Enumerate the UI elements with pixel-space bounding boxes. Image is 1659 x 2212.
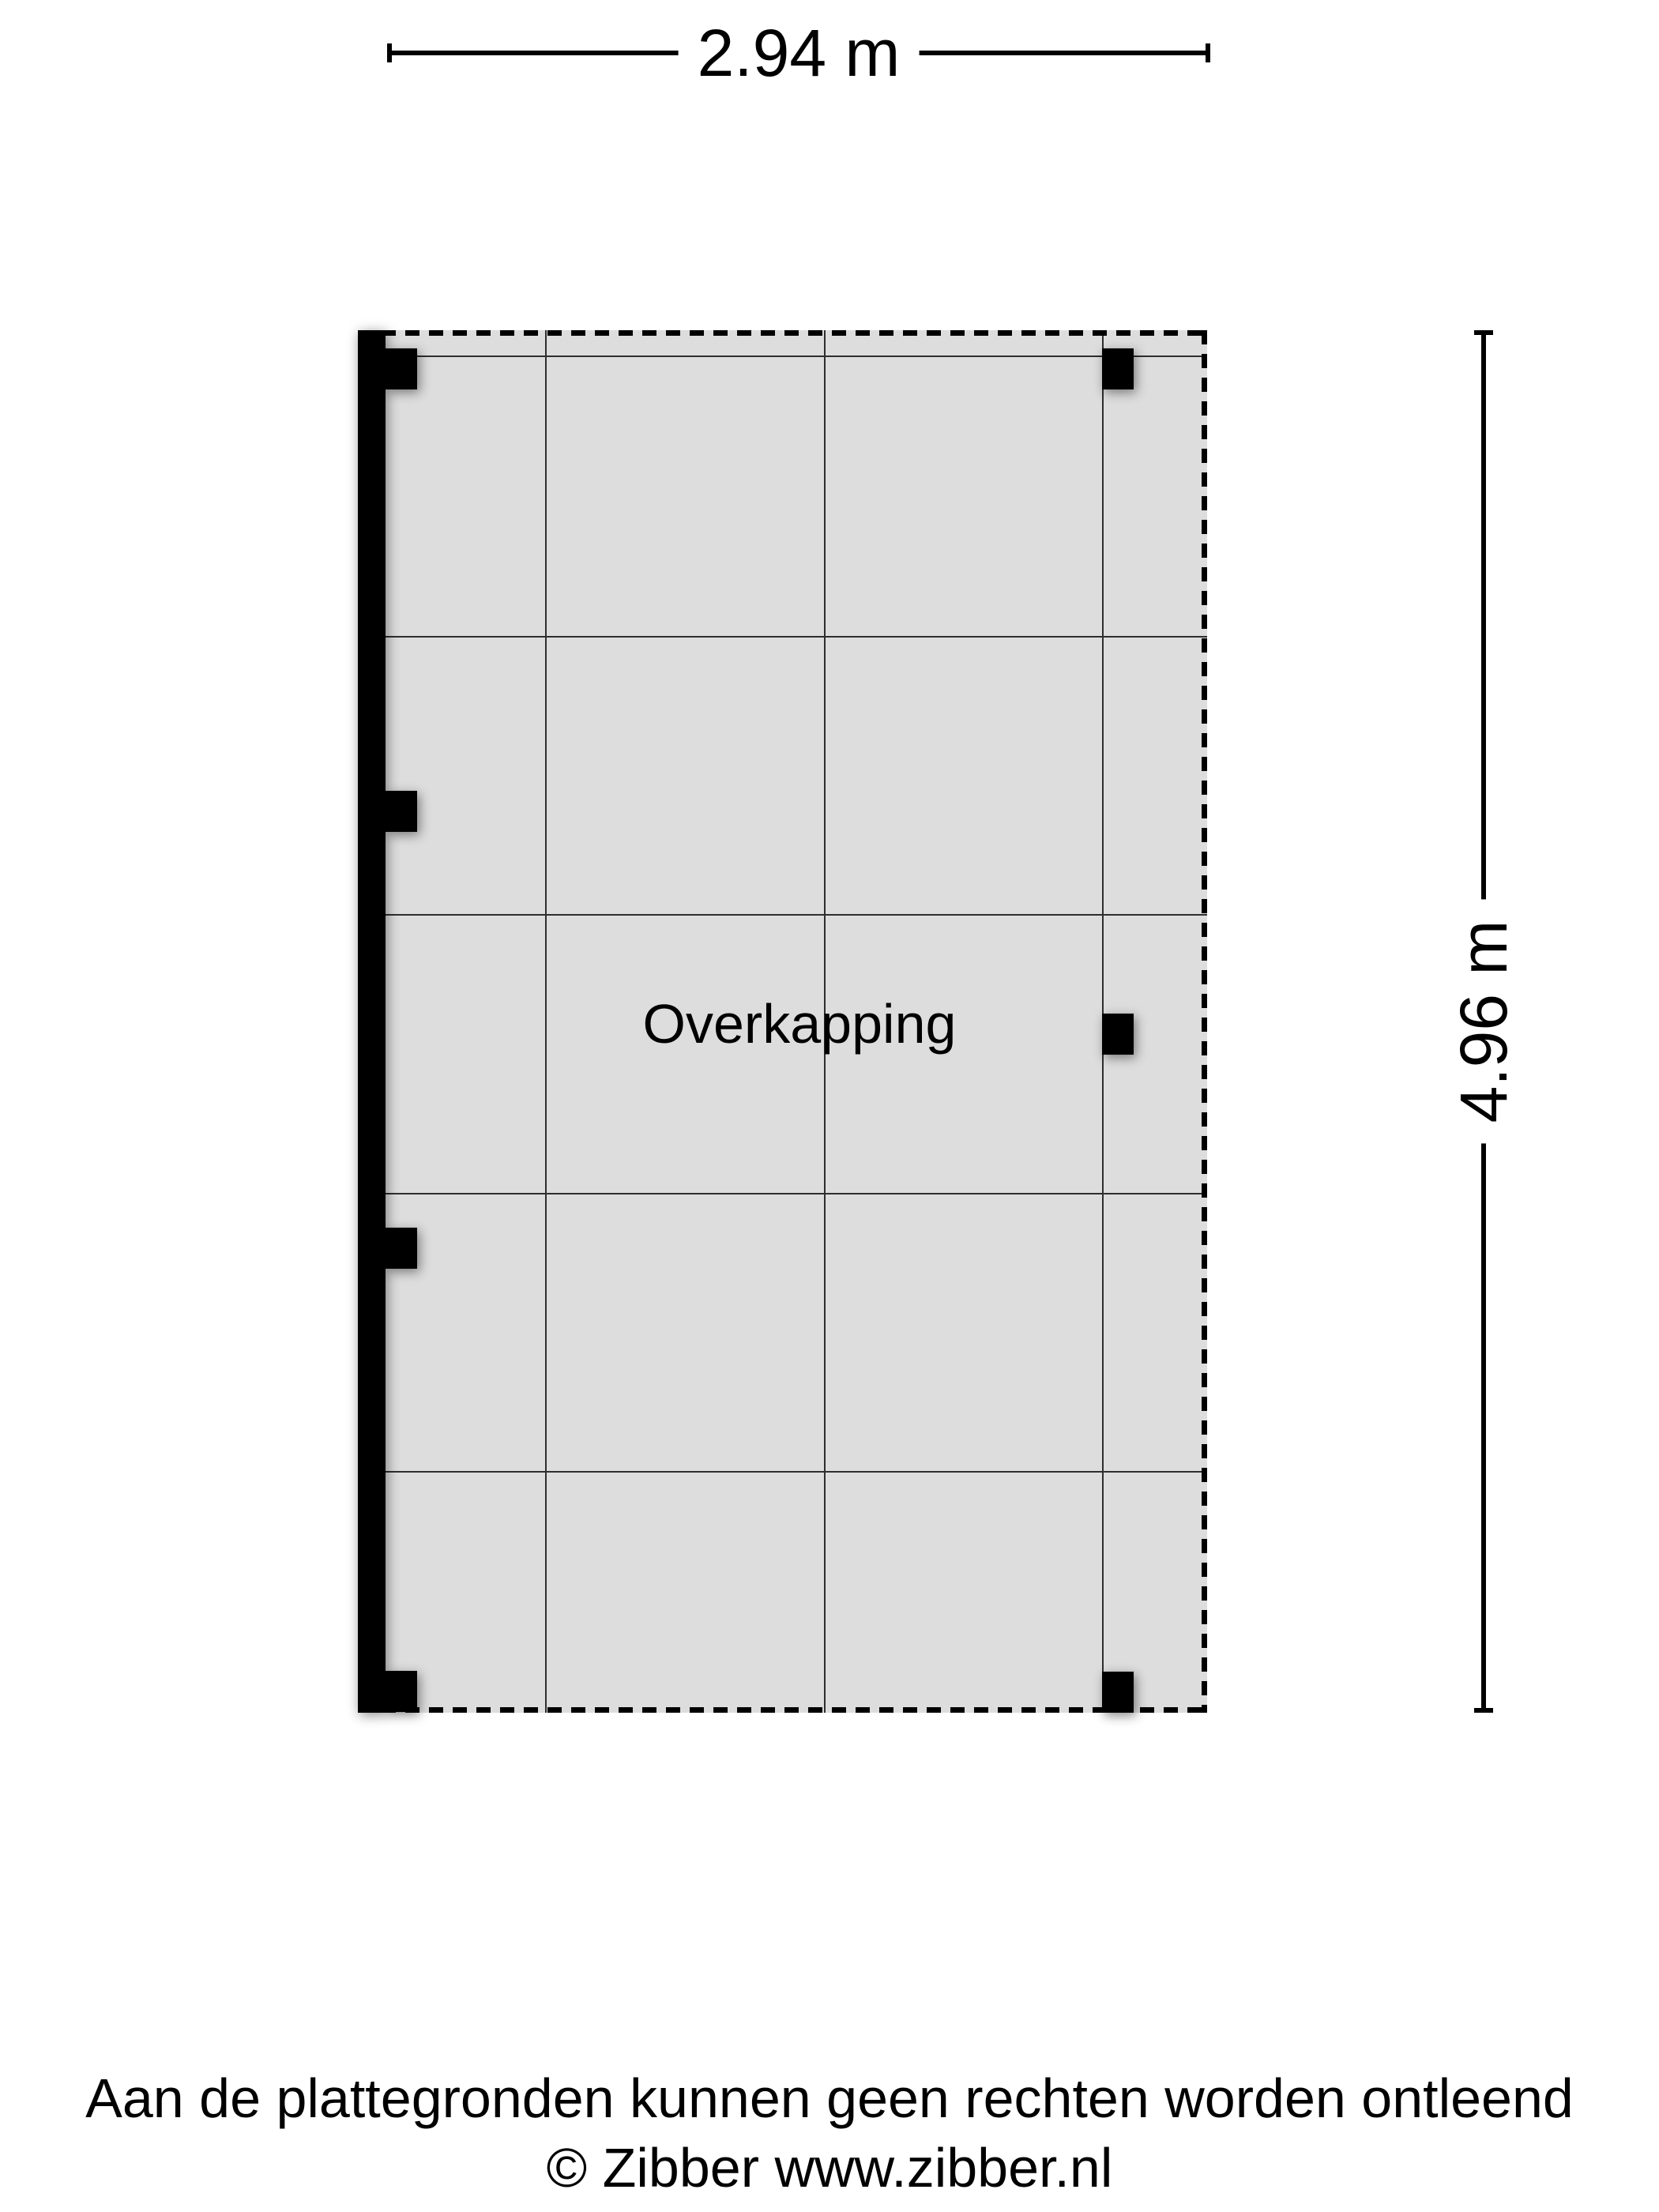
width-dimension: 2.94 m (387, 43, 1210, 62)
post-left-2 (386, 791, 417, 832)
post-right-1 (1102, 348, 1134, 389)
post-left-4 (386, 1671, 417, 1712)
post-right-3 (1102, 1672, 1134, 1713)
footer-disclaimer: Aan de plattegronden kunnen geen rechten… (0, 2063, 1659, 2133)
height-dimension: 4.96 m (1474, 330, 1493, 1713)
post-left-1 (386, 348, 417, 389)
height-dimension-tick-top (1474, 330, 1493, 335)
floor-plan-page: 2.94 m 4.96 m Overkapping (0, 0, 1659, 2212)
width-dimension-label: 2.94 m (679, 17, 920, 89)
post-left-3 (386, 1228, 417, 1269)
width-dimension-tick-left (387, 43, 392, 62)
floor-plan: Overkapping (358, 330, 1207, 1713)
height-dimension-tick-bottom (1474, 1708, 1493, 1713)
post-right-2 (1102, 1014, 1134, 1055)
height-dimension-label: 4.96 m (1447, 900, 1520, 1144)
room-label: Overkapping (643, 996, 957, 1051)
width-dimension-tick-right (1206, 43, 1210, 62)
left-wall (358, 330, 386, 1713)
footer-copyright: © Zibber www.zibber.nl (0, 2133, 1659, 2203)
footer: Aan de plattegronden kunnen geen rechten… (0, 2063, 1659, 2203)
